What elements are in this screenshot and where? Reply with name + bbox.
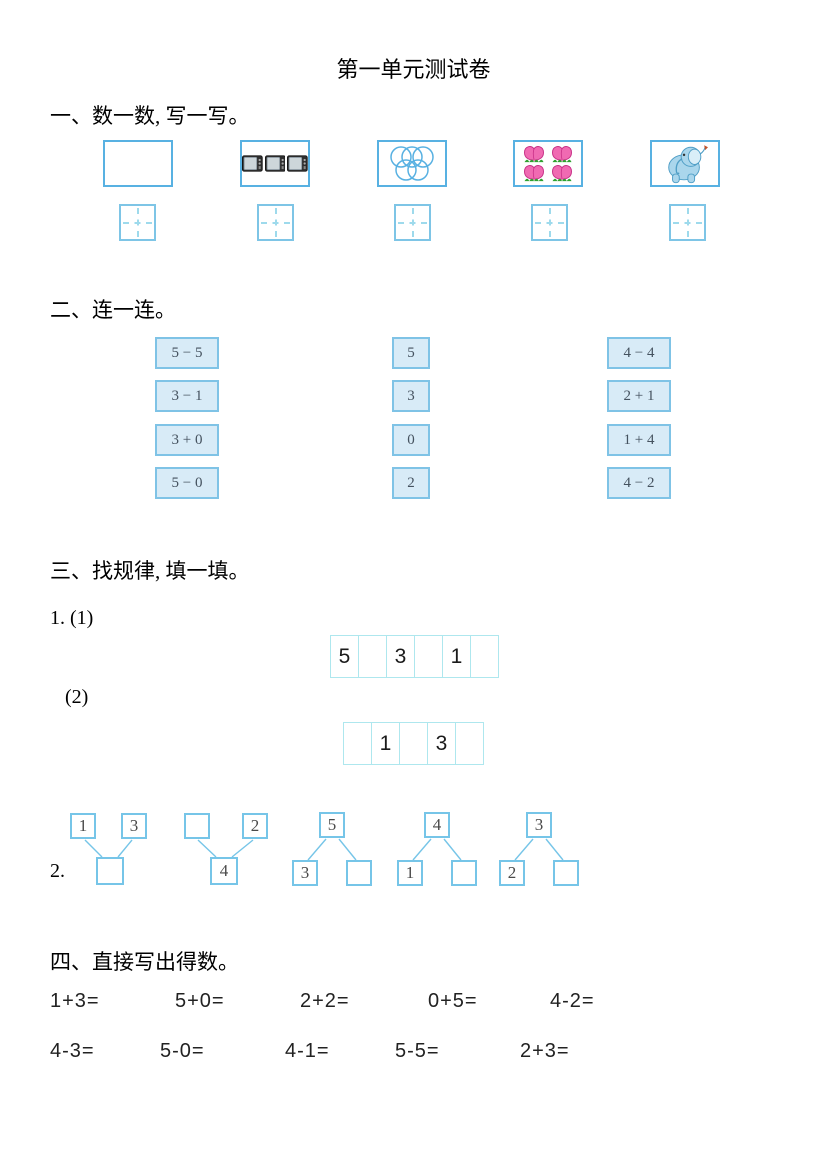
match-number[interactable]: 5 <box>392 337 430 369</box>
equation: 5-0= <box>160 1040 205 1063</box>
strip-cell: 3 <box>427 722 456 765</box>
dashed-cross-vertical <box>549 208 551 237</box>
match-expression-left[interactable]: 3 − 1 <box>155 380 219 412</box>
writing-box[interactable] <box>257 204 294 241</box>
dashed-cross-vertical <box>687 208 689 237</box>
section3-item2-label: (2) <box>65 686 88 709</box>
strip-cell[interactable] <box>399 722 428 765</box>
bond-top-box: 1 <box>70 813 96 839</box>
olympic-rings-icon <box>384 145 440 183</box>
strip-cell[interactable] <box>470 635 499 678</box>
section3-item3-label: 2. <box>50 860 65 883</box>
strip-cell[interactable] <box>414 635 443 678</box>
tv-icon <box>242 154 263 173</box>
worksheet-page: 第一单元测试卷 一、数一数, 写一写。 <box>0 0 827 1169</box>
section2-heading: 二、连一连。 <box>50 294 176 324</box>
bond-bottom-box[interactable] <box>451 860 477 886</box>
section3-heading: 三、找规律, 填一填。 <box>50 555 250 585</box>
page-title: 第一单元测试卷 <box>0 52 827 84</box>
strip-cell: 1 <box>442 635 471 678</box>
equation: 4-3= <box>50 1040 95 1063</box>
bond-top-box: 5 <box>319 812 345 838</box>
match-expression-left[interactable]: 3 + 0 <box>155 424 219 456</box>
match-number[interactable]: 3 <box>392 380 430 412</box>
writing-box[interactable] <box>119 204 156 241</box>
pattern-strip-2: 1 3 <box>343 722 484 765</box>
bond-bottom-box[interactable] <box>96 857 124 885</box>
peach-grid <box>523 145 573 183</box>
bond-top-box: 2 <box>242 813 268 839</box>
strip-cell: 5 <box>330 635 359 678</box>
strip-cell[interactable] <box>343 722 372 765</box>
bond-top-box: 3 <box>526 812 552 838</box>
picture-box-elephant <box>650 140 720 187</box>
bond-top-box[interactable] <box>184 813 210 839</box>
peach-icon <box>551 164 573 183</box>
section4-heading: 四、直接写出得数。 <box>50 946 239 976</box>
match-expression-right[interactable]: 4 − 2 <box>607 467 671 499</box>
equation: 2+2= <box>300 990 350 1013</box>
bond-bottom-box: 1 <box>397 860 423 886</box>
picture-box-peaches <box>513 140 583 187</box>
match-number[interactable]: 0 <box>392 424 430 456</box>
match-expression-right[interactable]: 4 − 4 <box>607 337 671 369</box>
equation: 4-1= <box>285 1040 330 1063</box>
bond-top-box: 3 <box>121 813 147 839</box>
bond-bottom-box[interactable] <box>346 860 372 886</box>
peach-icon <box>523 145 545 164</box>
writing-box[interactable] <box>394 204 431 241</box>
equation: 5+0= <box>175 990 225 1013</box>
bond-top-box: 4 <box>424 812 450 838</box>
writing-box[interactable] <box>531 204 568 241</box>
pattern-strip-1: 5 3 1 <box>330 635 499 678</box>
equation: 2+3= <box>520 1040 570 1063</box>
picture-box-empty <box>103 140 173 187</box>
dashed-cross-vertical <box>275 208 277 237</box>
picture-box-televisions <box>240 140 310 187</box>
strip-cell[interactable] <box>455 722 484 765</box>
section1-heading: 一、数一数, 写一写。 <box>50 100 250 130</box>
tv-icon <box>265 154 286 173</box>
match-expression-right[interactable]: 2 + 1 <box>607 380 671 412</box>
elephant-icon <box>662 143 708 184</box>
equation: 0+5= <box>428 990 478 1013</box>
bond-bottom-box: 3 <box>292 860 318 886</box>
bond-bottom-box: 4 <box>210 857 238 885</box>
writing-box[interactable] <box>669 204 706 241</box>
match-expression-left[interactable]: 5 − 5 <box>155 337 219 369</box>
strip-cell: 1 <box>371 722 400 765</box>
section3-item1-label: 1. (1) <box>50 607 93 630</box>
dashed-cross-vertical <box>412 208 414 237</box>
dashed-cross-vertical <box>137 208 139 237</box>
strip-cell[interactable] <box>358 635 387 678</box>
strip-cell: 3 <box>386 635 415 678</box>
match-expression-right[interactable]: 1 + 4 <box>607 424 671 456</box>
equation: 5-5= <box>395 1040 440 1063</box>
picture-box-rings <box>377 140 447 187</box>
peach-icon <box>523 164 545 183</box>
peach-icon <box>551 145 573 164</box>
number-bonds-area: 2. 1 3 2 4 5 3 4 1 3 2 <box>0 800 827 900</box>
bond-bottom-box[interactable] <box>553 860 579 886</box>
bond-bottom-box: 2 <box>499 860 525 886</box>
equation: 1+3= <box>50 990 100 1013</box>
tv-icon <box>287 154 308 173</box>
match-number[interactable]: 2 <box>392 467 430 499</box>
equation: 4-2= <box>550 990 595 1013</box>
match-expression-left[interactable]: 5 − 0 <box>155 467 219 499</box>
